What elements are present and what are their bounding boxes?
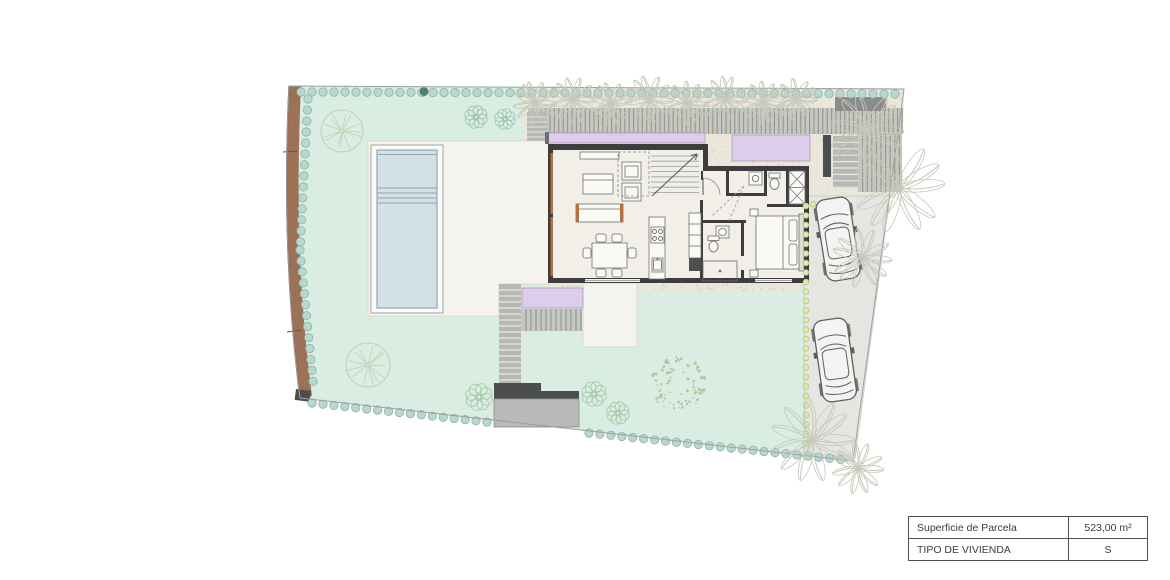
sofa <box>576 204 623 222</box>
chair <box>596 234 606 242</box>
chair <box>628 248 636 258</box>
sideboard <box>580 152 619 159</box>
swimming-pool <box>371 145 443 313</box>
swimming-pool-water <box>377 150 437 308</box>
kitchen-cabinets <box>689 213 701 258</box>
toilet <box>770 179 779 190</box>
planter <box>548 133 705 143</box>
chair <box>612 269 622 277</box>
washer <box>749 172 762 185</box>
planter <box>732 135 810 161</box>
dining-table <box>592 243 627 268</box>
entry-step <box>494 383 541 399</box>
toilet <box>709 241 718 252</box>
site-plan <box>0 0 1170 580</box>
planter <box>522 288 583 308</box>
chair <box>612 234 622 242</box>
dark-hedge-dot <box>420 87 429 96</box>
table-row-parcel: Superficie de Parcela 523,00 m² <box>909 517 1148 539</box>
entry-pad <box>494 399 579 427</box>
bed <box>756 216 801 269</box>
chair <box>596 269 606 277</box>
chair <box>583 248 591 258</box>
dwelling-type-label: TIPO DE VIVIENDA <box>909 539 1069 561</box>
page: Superficie de Parcela 523,00 m² TIPO DE … <box>0 0 1170 580</box>
parcel-area-value: 523,00 m² <box>1069 517 1148 539</box>
dwelling-type-value: S <box>1069 539 1148 561</box>
lounger <box>583 174 613 194</box>
table-row-dwelling: TIPO DE VIVIENDA S <box>909 539 1148 561</box>
parcel-area-label: Superficie de Parcela <box>909 517 1069 539</box>
info-table: Superficie de Parcela 523,00 m² TIPO DE … <box>908 516 1148 561</box>
